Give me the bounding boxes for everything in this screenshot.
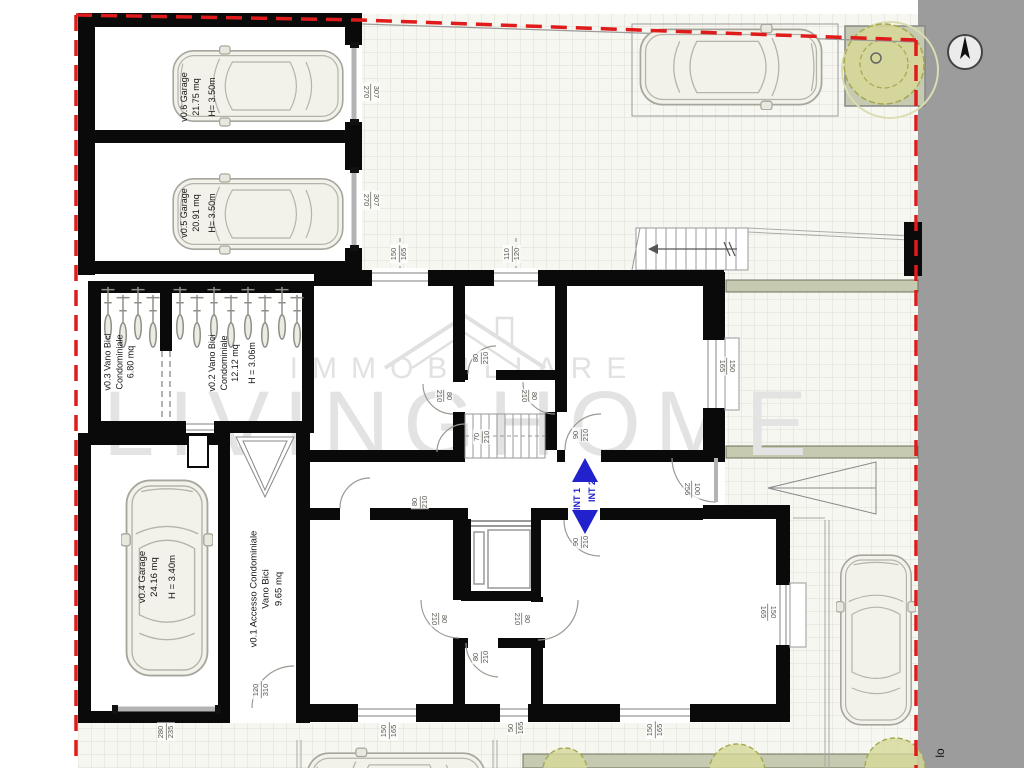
car-courtyard-top — [640, 24, 821, 109]
dimension-label: 100256 — [683, 480, 701, 499]
dimension-label: 50165 — [507, 721, 525, 736]
floor-plan-drawing: IMMOBILIARE LIVINGHOME — [0, 0, 1024, 768]
dimension-label: 150165 — [646, 721, 664, 740]
room-label-v01: v0.1 Accesso Condominiale Vano Bici 9.65… — [248, 531, 285, 648]
duct-niche — [188, 435, 208, 467]
dimension-label: 150165 — [380, 722, 398, 741]
unit-label-int1: INT 1 — [572, 488, 582, 510]
dimension-label: 70210 — [473, 430, 491, 445]
room-label-v06: v0.6 Garage 21.75 mq H= 3.50m — [179, 72, 219, 122]
int1-arrow-icon — [572, 510, 598, 534]
dimension-label: 120310 — [252, 681, 270, 700]
floor-plan-page: IMMOBILIARE LIVINGHOME — [0, 0, 1024, 768]
room-label-v03: v0.3 Vano Bici Condominiale 6.80 mq — [102, 334, 137, 391]
dimension-label: 150165 — [718, 357, 736, 376]
dimension-label: 90210 — [572, 535, 590, 550]
dimension-label: 307270 — [362, 191, 380, 210]
dimension-label: 80210 — [430, 612, 448, 627]
room-label-v05: v0.5 Garage 20.91 mq H= 3.50m — [179, 188, 219, 238]
room-label-v04: v0.4 Garage 24.16 mq H = 3.40m — [137, 551, 179, 603]
dimension-label: 280235 — [157, 723, 175, 742]
dimension-label: 80210 — [472, 351, 490, 366]
exterior-stairs — [632, 228, 748, 270]
elevator — [461, 519, 541, 601]
unit-label-int2: INT 2 — [587, 480, 597, 502]
dimension-label: 80210 — [435, 389, 453, 404]
dimension-label: 80210 — [411, 495, 429, 510]
street-edge-label: lo — [933, 748, 947, 757]
dimension-label: 80210 — [513, 612, 531, 627]
dimension-label: 80210 — [472, 650, 490, 665]
room-label-v02: v0.2 Vano Bici Condominiale 12.12 mq H =… — [207, 335, 259, 392]
car-parking-right — [836, 555, 916, 725]
dimension-label: 307270 — [362, 83, 380, 102]
dimension-label: 150165 — [390, 245, 408, 264]
dimension-label: 150165 — [759, 603, 777, 622]
dimension-label: 80210 — [520, 389, 538, 404]
street-band — [918, 0, 1024, 768]
dimension-label: 110120 — [503, 245, 521, 263]
north-compass-icon — [948, 35, 982, 69]
dimension-label: 90210 — [572, 428, 590, 443]
